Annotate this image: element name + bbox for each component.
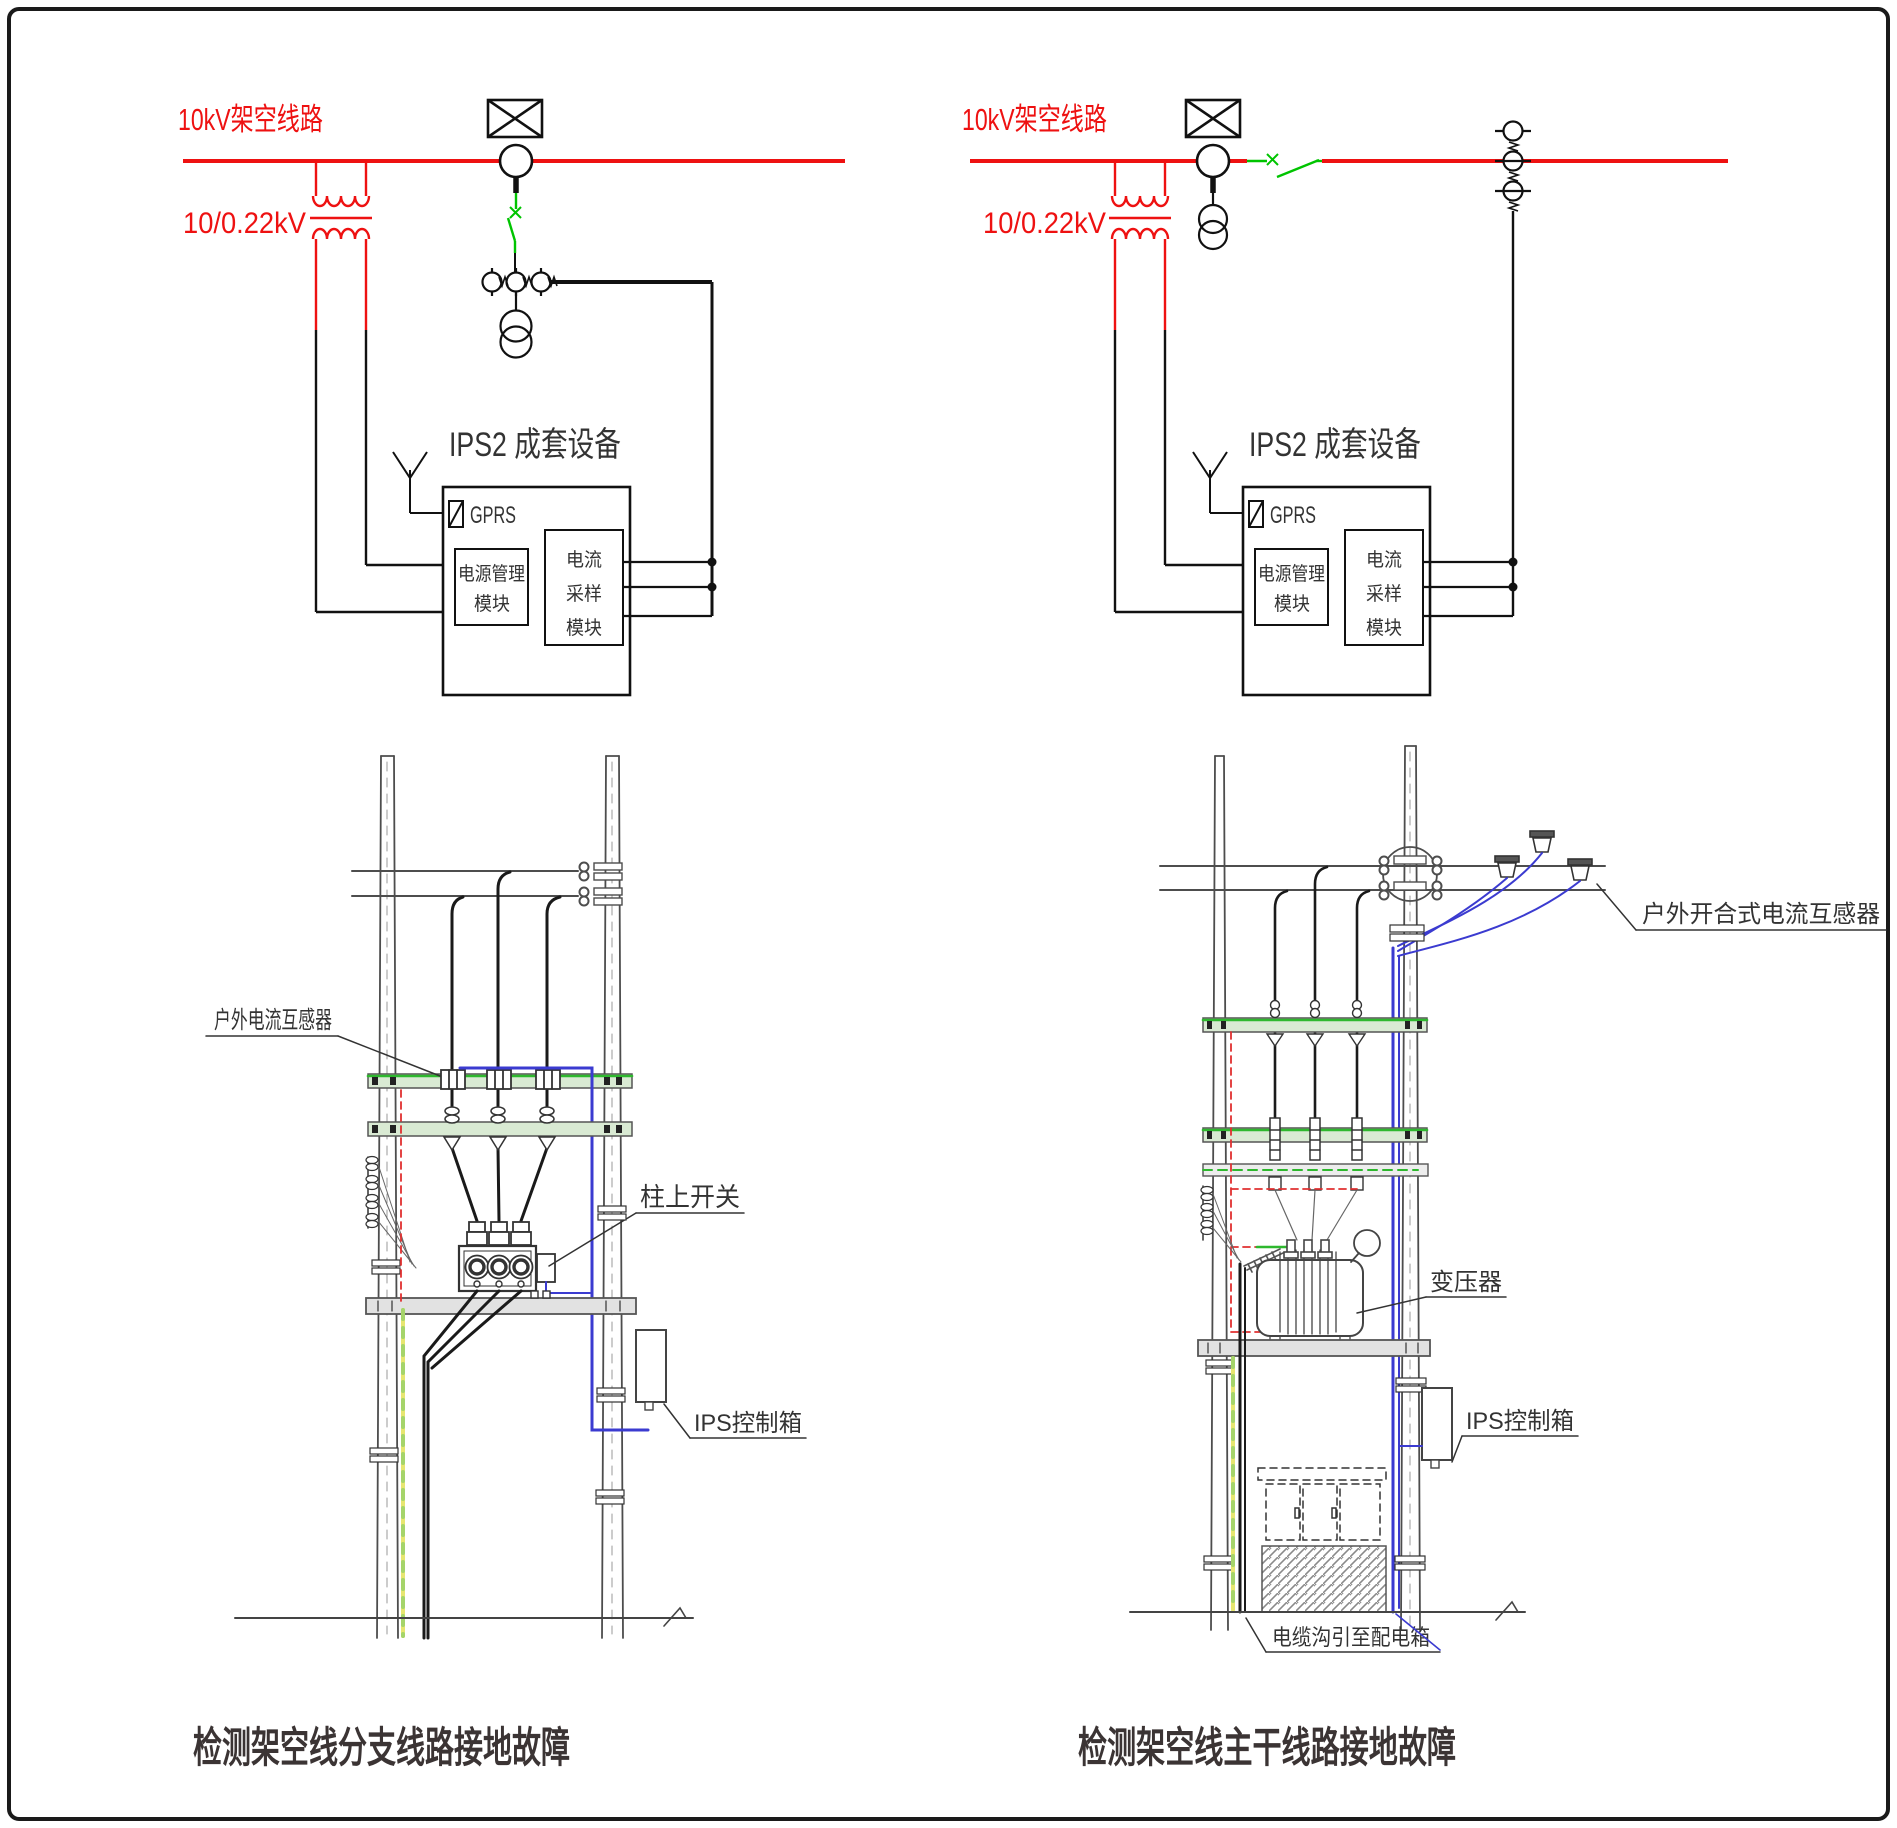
gprs-label: GPRS [470, 502, 516, 529]
current-module-line3: 模块 [1366, 617, 1402, 639]
equipment-title: IPS2 成套设备 [1249, 426, 1421, 464]
current-module-line2: 采样 [1366, 583, 1402, 605]
power-module-line1: 电源管理 [1258, 563, 1325, 585]
diagram-page: 10kV架空线路 10/0.22kV [0, 0, 1897, 1828]
transformer-bushings [1284, 1240, 1332, 1258]
ips-control-box-label: IPS控制箱 [1466, 1408, 1574, 1435]
power-module-line2: 模块 [474, 593, 510, 615]
fuse-cutout-icon [488, 100, 542, 137]
gprs-label: GPRS [1270, 502, 1316, 529]
breaker-circle-icon [1197, 145, 1229, 177]
breaker-circle-icon [500, 145, 532, 177]
transformer-label: 变压器 [1430, 1269, 1502, 1296]
ips-control-box [1422, 1388, 1452, 1460]
outdoor-ct-label: 户外电流互感器 [214, 1007, 332, 1034]
overhead-line-label: 10kV架空线路 [178, 102, 323, 137]
power-module-line1: 电源管理 [458, 563, 525, 585]
branch-caption: 检测架空线分支线路接地故障 [193, 1724, 570, 1771]
frame-border [9, 9, 1888, 1819]
current-module-line1: 电流 [1366, 549, 1402, 571]
clamp-ct-label: 户外开合式电流互感器 [1642, 901, 1880, 928]
power-module-line2: 模块 [1274, 593, 1310, 615]
ips-box-tab [645, 1402, 653, 1410]
current-module-line2: 采样 [566, 583, 602, 605]
switch-mechanism-box [537, 1254, 555, 1282]
ips-control-box-label: IPS控制箱 [694, 1410, 802, 1437]
current-module-line3: 模块 [566, 617, 602, 639]
cable-trench-label: 电缆沟引至配电箱 [1272, 1625, 1430, 1650]
platform [1198, 1340, 1430, 1356]
current-module-line1: 电流 [566, 549, 602, 571]
ips-box-tab [1431, 1460, 1439, 1468]
transformer-ratio-label: 10/0.22kV [183, 207, 306, 240]
overhead-line-label: 10kV架空线路 [962, 102, 1107, 137]
diagram-svg: 10kV架空线路 10/0.22kV [0, 0, 1897, 1828]
trunk-caption: 检测架空线主干线路接地故障 [1078, 1724, 1456, 1771]
pole-switch-label: 柱上开关 [640, 1182, 740, 1212]
equipment-title: IPS2 成套设备 [449, 426, 621, 464]
outdoor-ct-blocks [441, 1070, 560, 1089]
ips-control-box [636, 1330, 666, 1402]
foundation-hatch [1262, 1546, 1386, 1612]
fuse-cutout-icon [1186, 100, 1240, 137]
transformer-ratio-label: 10/0.22kV [983, 207, 1106, 240]
